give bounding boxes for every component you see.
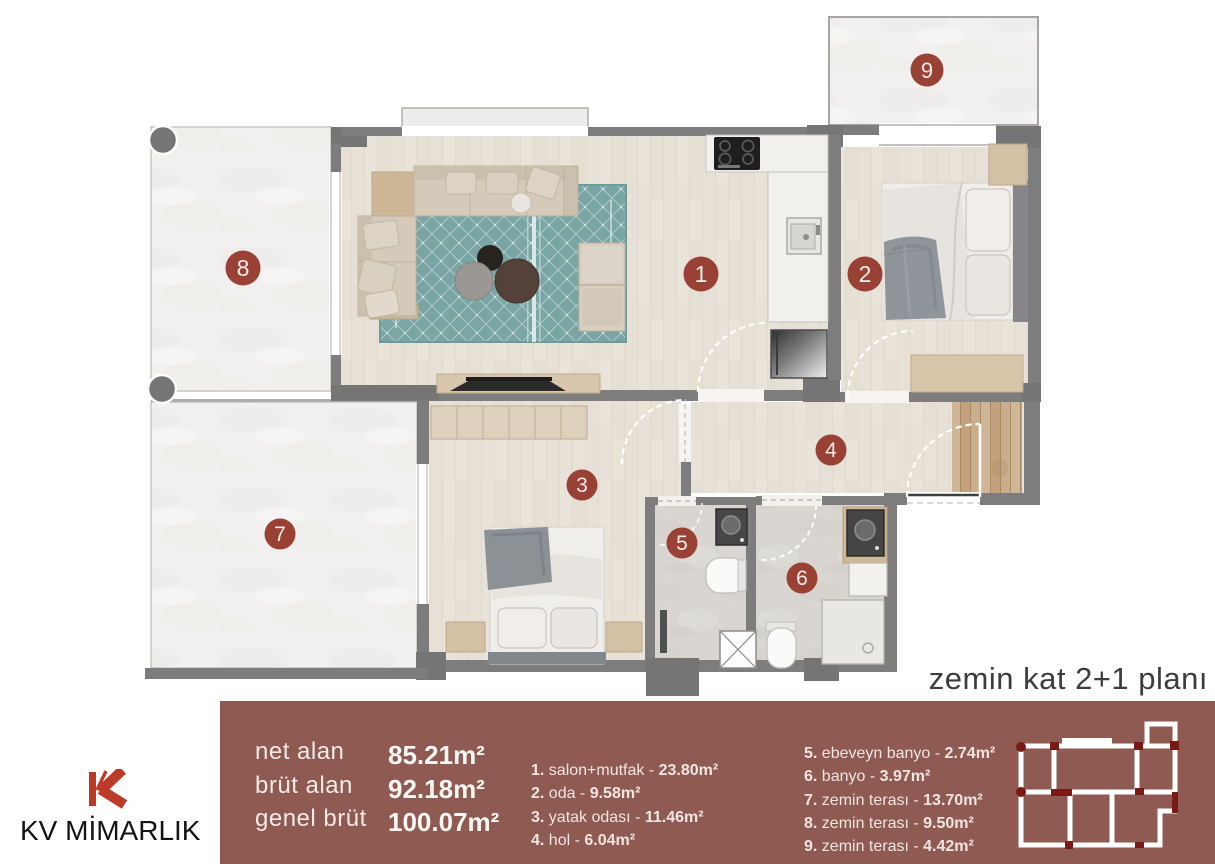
svg-text:2: 2 [859,261,872,287]
svg-text:3: 3 [576,474,588,497]
svg-text:8: 8 [237,255,250,281]
svg-text:6: 6 [796,567,808,590]
svg-text:9: 9 [921,58,933,83]
svg-text:4: 4 [825,439,837,462]
svg-text:1: 1 [695,261,708,287]
svg-text:5: 5 [676,532,688,555]
svg-text:7: 7 [274,523,286,546]
